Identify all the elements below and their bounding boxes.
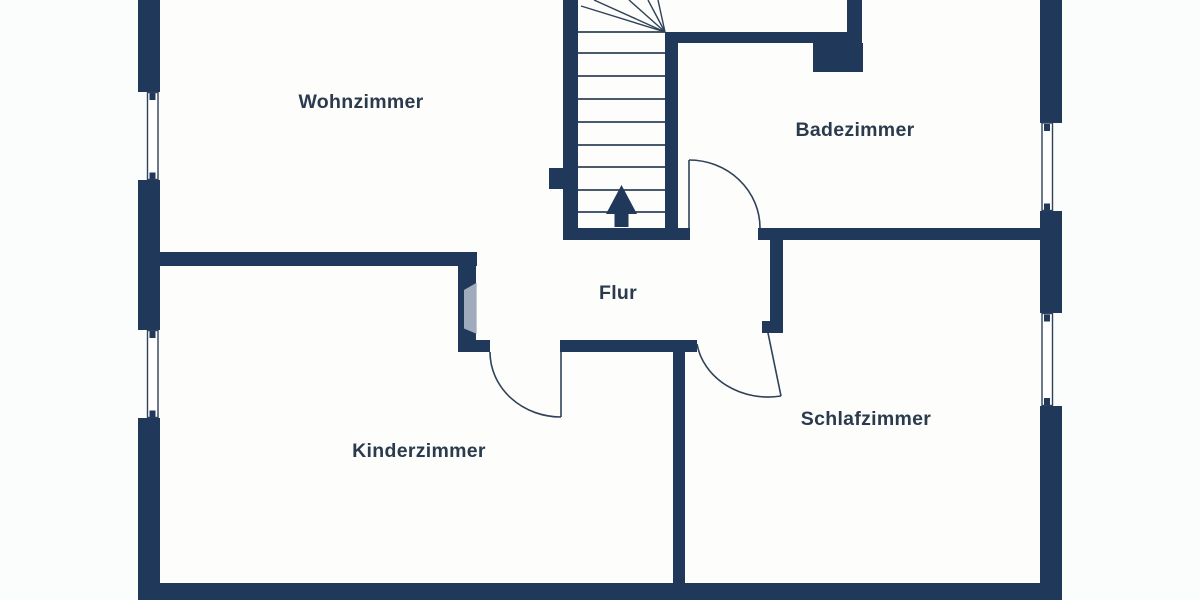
window-left-lower [148,331,159,418]
living-kids-divider [160,252,477,266]
wall-bottom [138,583,1062,600]
window-cap [150,411,156,418]
bath-top-wall [665,32,862,43]
window-cap [1044,124,1050,131]
kids-bedroom-divider [673,352,685,583]
window-cap [1044,398,1050,405]
hall-bedroom-jamb [762,321,783,333]
label-kinderzimmer: Kinderzimmer [352,440,486,462]
watermark-fragment [464,283,477,335]
window-left-upper [148,93,159,180]
wall-right-lower [1040,406,1062,600]
wall-left-upper [138,0,160,92]
chimney-block [813,43,863,72]
window-frame [148,331,159,418]
wall-left-lower [138,418,160,600]
wall-right-middle [1040,211,1062,313]
stair-left-wall [563,0,578,240]
window-cap [150,331,156,338]
window-cap [150,173,156,180]
window-right-lower [1042,314,1053,406]
arrow-shaft [615,212,629,227]
window-frame [1042,123,1053,211]
label-schlafzimmer: Schlafzimmer [801,408,932,430]
chimney-riser [847,0,862,43]
stair-wall-stub [549,168,563,189]
label-wohnzimmer: Wohnzimmer [298,91,423,113]
label-badezimmer: Badezimmer [796,119,915,141]
stair-bottom-wall [563,228,690,240]
window-right-upper [1042,123,1053,211]
wall-left-middle [138,180,160,330]
stair-right-wall [665,32,678,240]
hall-bottom-wall-left [458,340,490,352]
hall-bottom-wall-right [560,340,697,352]
window-cap [150,93,156,100]
window-cap [1044,204,1050,211]
wall-right-upper [1040,0,1062,123]
floor-plan-page: Wohnzimmer Badezimmer Flur Kinderzimmer … [0,0,1200,600]
floor-plan: Wohnzimmer Badezimmer Flur Kinderzimmer … [0,0,1200,600]
bath-bottom-wall [758,228,1040,240]
window-cap [1044,315,1050,322]
window-frame [148,93,159,180]
window-frame [1042,314,1053,406]
label-flur: Flur [599,282,637,304]
hall-bedroom-divider [770,238,783,321]
